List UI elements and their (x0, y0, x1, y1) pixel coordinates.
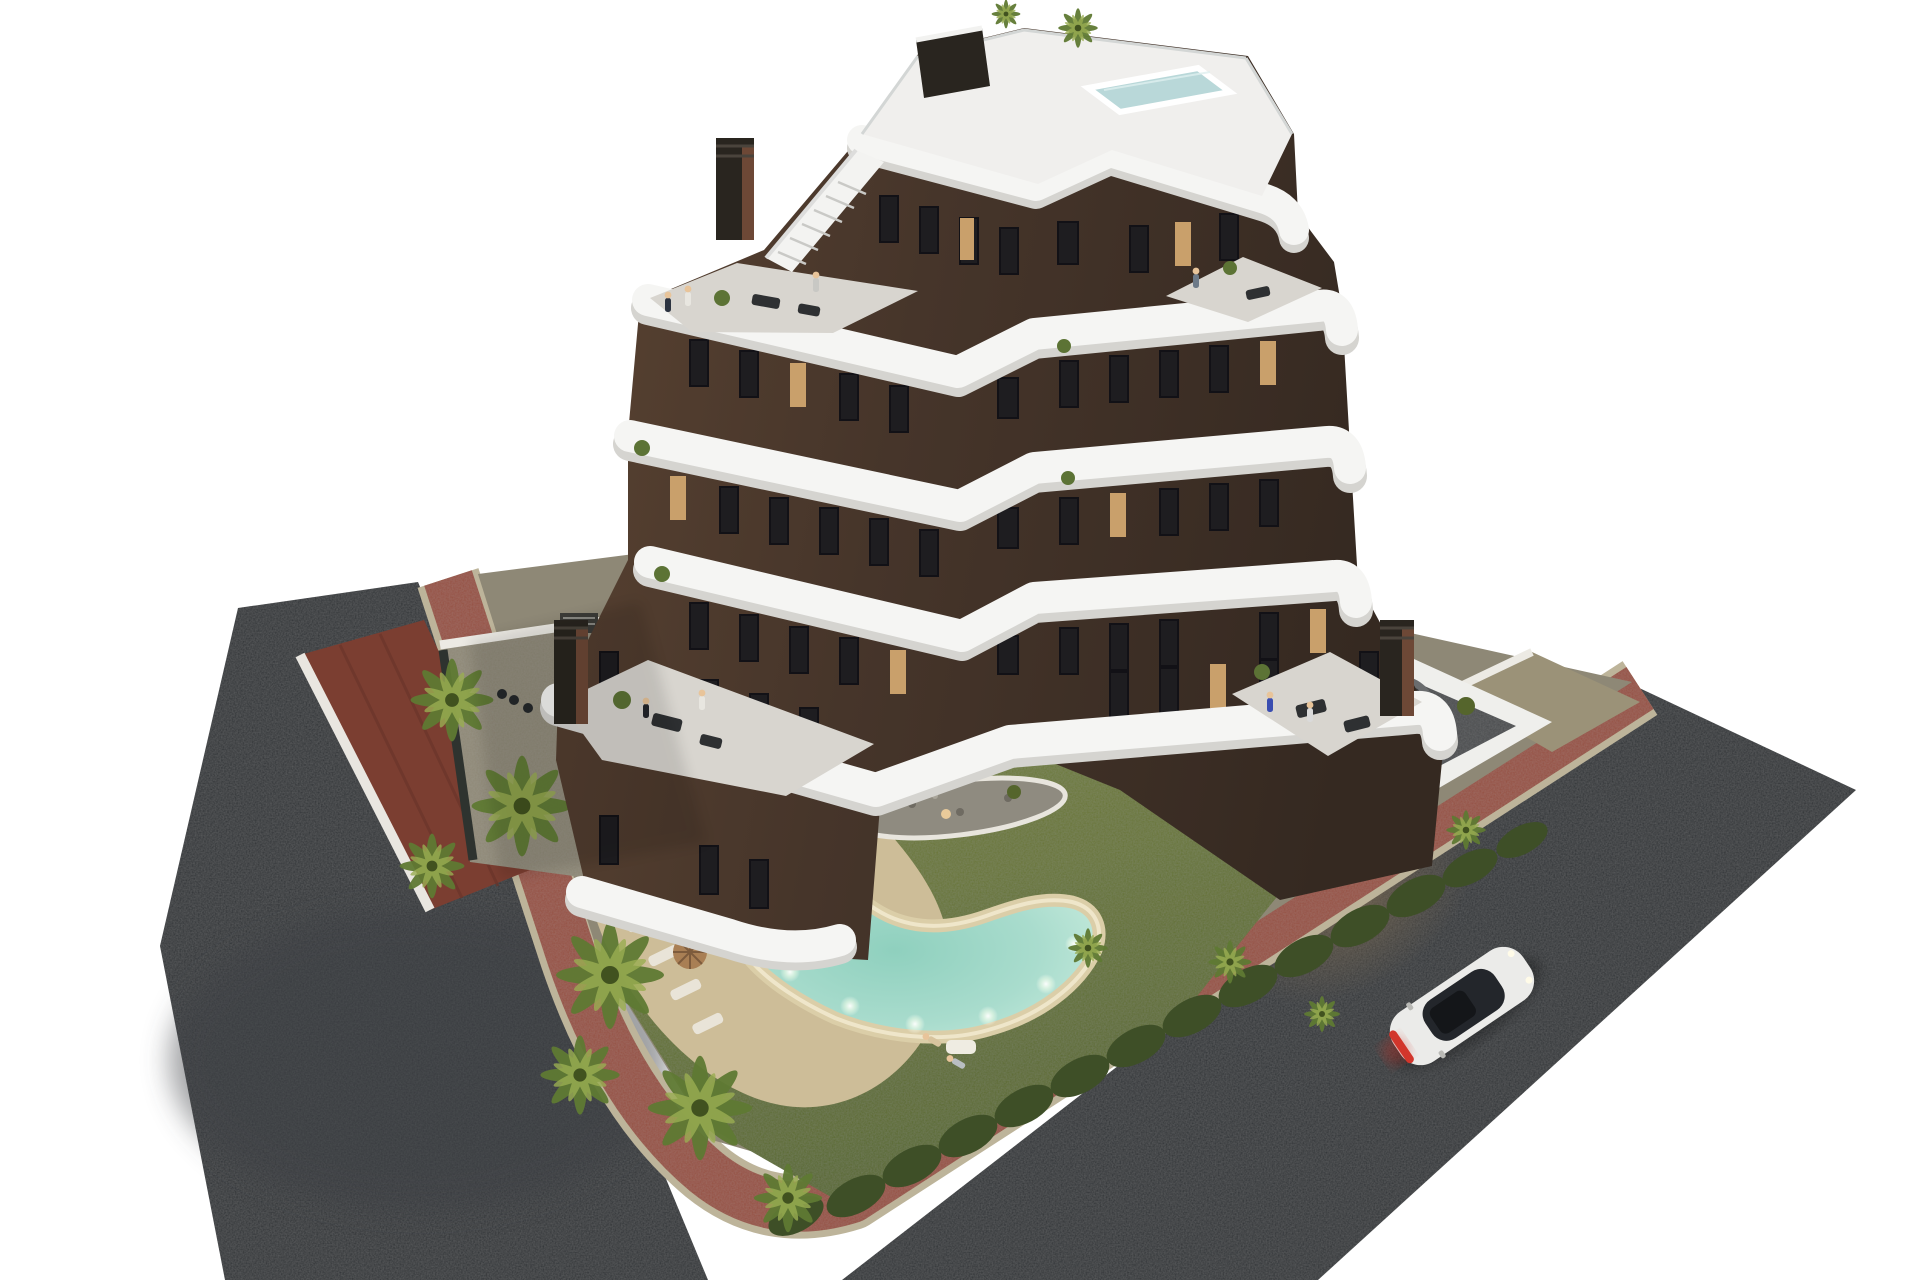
window-lit (670, 476, 686, 520)
window-lit (790, 363, 806, 407)
window-lit (1175, 222, 1191, 266)
window (890, 386, 908, 432)
window (1160, 620, 1178, 666)
window (840, 638, 858, 684)
window (790, 627, 808, 673)
window (1160, 351, 1178, 397)
window (1060, 628, 1078, 674)
window (1220, 214, 1238, 260)
chimney (716, 138, 754, 240)
window (1060, 498, 1078, 544)
window (700, 846, 718, 894)
window (998, 378, 1018, 418)
window-lit (1260, 341, 1276, 385)
window (1160, 489, 1178, 535)
window (690, 603, 708, 649)
window-lit (890, 650, 906, 694)
window-lit (960, 218, 974, 260)
window (920, 207, 938, 253)
window (690, 340, 708, 386)
window (750, 860, 768, 908)
window (1260, 480, 1278, 526)
window (740, 351, 758, 397)
window-lit (1110, 493, 1126, 537)
window (1058, 222, 1078, 264)
window (820, 508, 838, 554)
window (1110, 356, 1128, 402)
window (1210, 346, 1228, 392)
aerial-render (0, 0, 1920, 1280)
window (740, 615, 758, 661)
window (1060, 361, 1078, 407)
pool-sofa (946, 1040, 976, 1054)
chimney (1380, 620, 1414, 716)
window (870, 519, 888, 565)
window (1210, 484, 1228, 530)
window (840, 374, 858, 420)
window (1110, 672, 1128, 718)
roof-plant (1058, 8, 1098, 48)
window (880, 196, 898, 242)
window (1130, 226, 1148, 272)
window (998, 508, 1018, 548)
window (770, 498, 788, 544)
window (1260, 613, 1278, 659)
window (1160, 668, 1178, 714)
window (1110, 624, 1128, 670)
render-canvas (0, 0, 1920, 1280)
window-lit (1310, 609, 1326, 653)
window (720, 487, 738, 533)
person-roof (813, 272, 820, 292)
window (1000, 228, 1018, 274)
window-lit (1210, 664, 1226, 708)
window (920, 530, 938, 576)
